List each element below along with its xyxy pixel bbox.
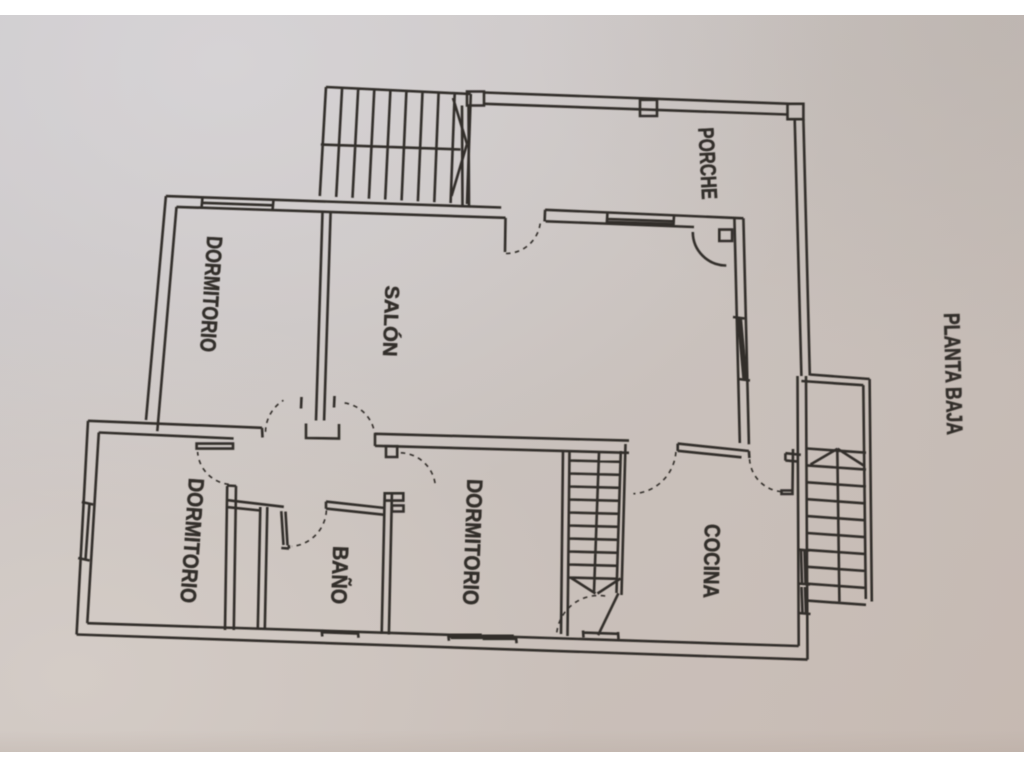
svg-text:SALÓN: SALÓN xyxy=(378,285,404,357)
svg-text:PORCHE: PORCHE xyxy=(693,127,722,200)
svg-text:PLANTA BAJA: PLANTA BAJA xyxy=(939,313,967,436)
svg-text:COCINA: COCINA xyxy=(699,524,725,599)
svg-text:BAÑO: BAÑO xyxy=(326,546,353,605)
svg-text:DORMITORIO: DORMITORIO xyxy=(458,479,487,606)
